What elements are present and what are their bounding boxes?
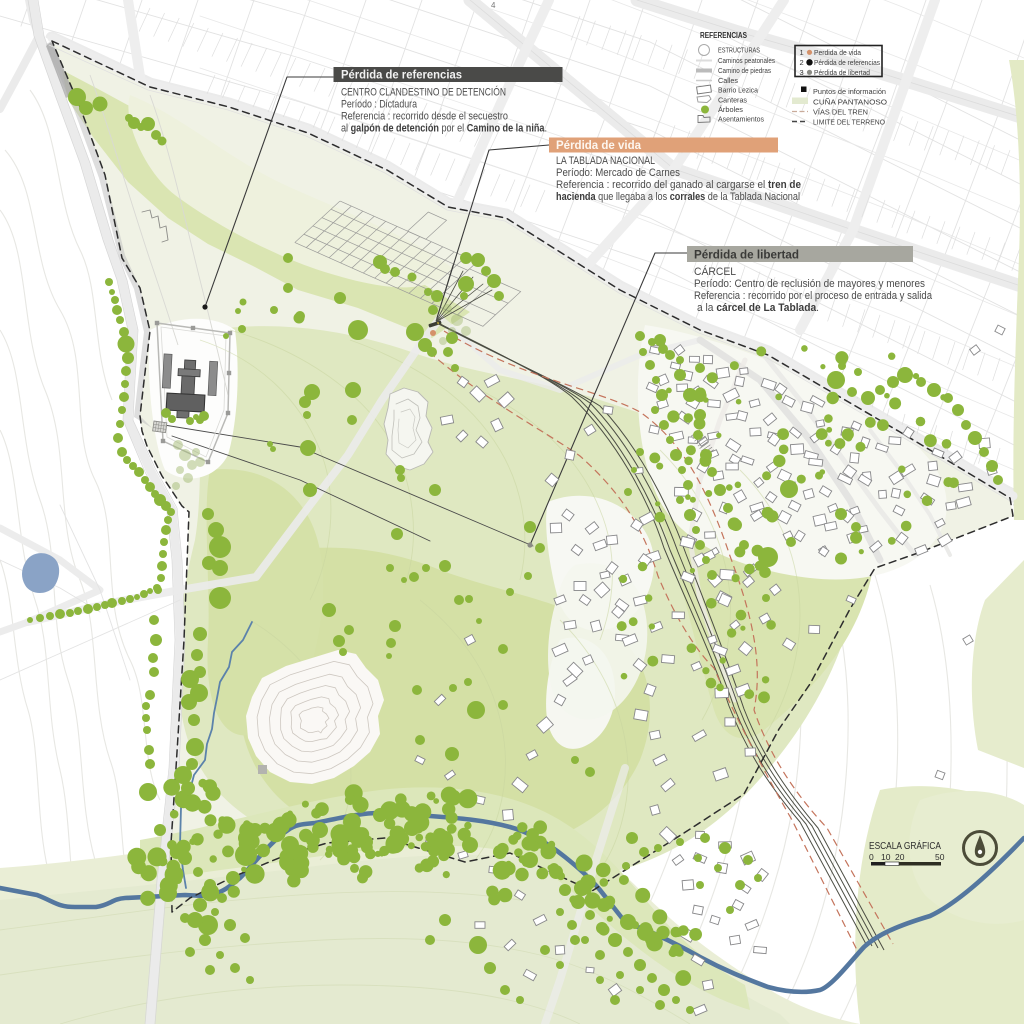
svg-text:Pérdida de referencias: Pérdida de referencias bbox=[341, 68, 462, 82]
svg-text:20: 20 bbox=[895, 852, 905, 862]
svg-text:Barrio Lezica: Barrio Lezica bbox=[718, 86, 759, 95]
svg-text:Canteras: Canteras bbox=[718, 96, 747, 105]
svg-text:CUÑA PANTANOSO: CUÑA PANTANOSO bbox=[813, 98, 887, 107]
svg-text:ESTRUCTURAS: ESTRUCTURAS bbox=[718, 46, 760, 55]
svg-text:50: 50 bbox=[935, 852, 945, 862]
svg-text:Puntos de información: Puntos de información bbox=[813, 87, 886, 96]
svg-text:Período : Dictadura: Período : Dictadura bbox=[341, 99, 418, 111]
svg-text:2: 2 bbox=[800, 58, 804, 67]
svg-text:a la cárcel de La Tablada.: a la cárcel de La Tablada. bbox=[697, 302, 819, 314]
svg-text:1: 1 bbox=[800, 48, 804, 57]
svg-text:LA TABLADA NACIONAL: LA TABLADA NACIONAL bbox=[556, 155, 655, 167]
svg-text:REFERENCIAS: REFERENCIAS bbox=[700, 30, 747, 40]
svg-text:Calles: Calles bbox=[718, 76, 738, 85]
svg-text:Pérdida de libertad: Pérdida de libertad bbox=[694, 248, 799, 262]
svg-text:Período: Mercado de Carnes: Período: Mercado de Carnes bbox=[556, 167, 680, 179]
svg-text:Árboles: Árboles bbox=[718, 105, 743, 114]
svg-text:0: 0 bbox=[869, 852, 874, 862]
svg-text:Asentamientos: Asentamientos bbox=[718, 115, 764, 124]
svg-text:10: 10 bbox=[881, 852, 891, 862]
svg-text:VÍAS DEL TREN: VÍAS DEL TREN bbox=[813, 108, 868, 117]
svg-text:CÁRCEL: CÁRCEL bbox=[694, 265, 736, 278]
svg-text:al galpón de detención por el: al galpón de detención por el Camino de … bbox=[341, 123, 547, 135]
svg-text:Período: Centro de reclusión d: Período: Centro de reclusión de mayores … bbox=[694, 278, 925, 290]
svg-text:hacienda que llegaba a los cor: hacienda que llegaba a los corrales de l… bbox=[556, 191, 800, 203]
svg-text:Caminos peatonales: Caminos peatonales bbox=[718, 56, 775, 65]
svg-text:Perdida de vida: Perdida de vida bbox=[814, 49, 861, 57]
svg-text:Camino de piedras: Camino de piedras bbox=[718, 66, 771, 75]
svg-text:Referencia : recorrido del gan: Referencia : recorrido del ganado al car… bbox=[556, 179, 801, 191]
svg-text:Referencia : recorrido por el: Referencia : recorrido por el proceso de… bbox=[694, 290, 933, 302]
svg-text:Referencia : recorrido desde e: Referencia : recorrido desde el secuestr… bbox=[341, 111, 508, 123]
svg-text:LIMITE DEL TERRENO: LIMITE DEL TERRENO bbox=[813, 118, 885, 127]
svg-text:4: 4 bbox=[491, 1, 496, 10]
svg-text:3: 3 bbox=[800, 68, 804, 77]
svg-text:CENTRO CLANDESTINO DE DETENCIÓ: CENTRO CLANDESTINO DE DETENCIÓN bbox=[341, 86, 506, 99]
svg-text:Pérdida de vida: Pérdida de vida bbox=[556, 138, 641, 152]
svg-text:Pérdida de libertad: Pérdida de libertad bbox=[814, 69, 870, 77]
svg-text:Pérdida de referencias: Pérdida de referencias bbox=[814, 59, 880, 67]
svg-text:ESCALA GRÁFICA: ESCALA GRÁFICA bbox=[869, 839, 941, 852]
